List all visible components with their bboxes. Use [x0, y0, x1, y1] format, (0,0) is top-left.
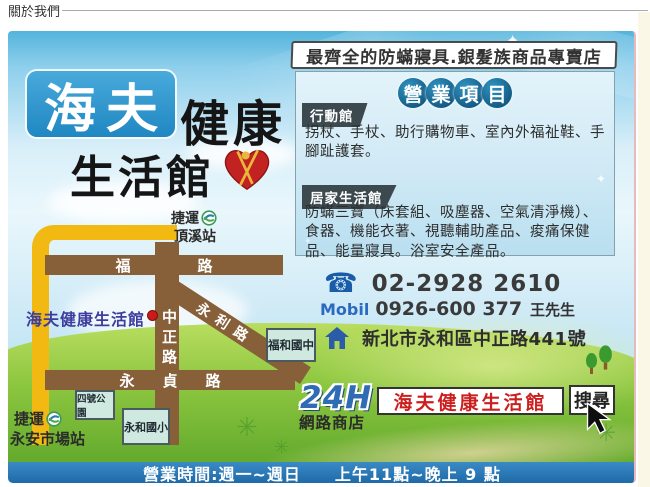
phone-number: 02-2928 2610 [372, 271, 562, 297]
logo-text-life-store: 生活館 [70, 141, 214, 206]
mobile-number: 0926-600 377 [375, 298, 522, 320]
mrt-station-bottom-name: 永安市場站 [10, 428, 85, 449]
sparkle-icon [596, 172, 606, 186]
house-icon [324, 326, 350, 350]
gift-heart-icon [220, 143, 274, 195]
map-place-park: 四號公園 [75, 390, 115, 420]
mobile-label: Mobil [320, 300, 369, 319]
section-text-home-living: 防蟎三寶（床套組、吸塵器、空氣清淨機）、食器、機能衣著、視聽輔助產品、痠痛保健品… [305, 204, 608, 262]
mrt-station-bottom: 捷運 [14, 408, 62, 429]
store-marker-label: 海夫健康生活館 [26, 306, 145, 330]
mrt-label: 捷運 [14, 408, 44, 429]
business-hours-time: 上午11點~晚上 9 點 [335, 461, 501, 484]
store-location-dot [147, 310, 158, 321]
road-zhongzheng-label: 中正路 [159, 309, 180, 369]
address-row: 新北市永和區中正路441號 [324, 325, 586, 351]
section-text-mobility: 拐杖、手杖、助行購物車、室內外福祉鞋、手腳趾護套。 [305, 124, 608, 163]
tree [599, 345, 612, 369]
cursor-arrow-icon [582, 402, 614, 436]
grass-burst-icon [274, 437, 289, 458]
about-section-label: 關於我們 [8, 1, 60, 20]
contact-person: 王先生 [530, 299, 575, 320]
title-char: 業 [426, 78, 456, 108]
phone-row: ☎ 02-2928 2610 [324, 268, 561, 299]
title-char: 目 [482, 78, 512, 108]
mrt-logo-icon [46, 411, 62, 427]
search-input[interactable]: 海夫健康生活館 [377, 387, 564, 415]
road-yongzhen: 永貞路 [45, 370, 295, 390]
page-right-margin [638, 12, 650, 487]
mobile-row: Mobil 0926-600 377 王先生 [320, 298, 575, 320]
grass-burst-icon [236, 413, 258, 443]
section-divider [62, 10, 648, 11]
title-char: 營 [398, 78, 428, 108]
mrt-label: 捷運 [171, 208, 199, 228]
online-shop-label: 網路商店 [299, 411, 365, 433]
tree [586, 353, 597, 374]
map-place-school2: 福和國中 [266, 328, 316, 362]
title-char: 項 [454, 78, 484, 108]
logo-text-haifu: 海夫 [34, 67, 168, 142]
store-promo-image: 海夫 健康 生活館 最齊全的防蟎寢具.銀髮族商品專賣店 營 業 項 目 行動館 … [8, 31, 636, 483]
logo-haifu-badge: 海夫 [27, 71, 175, 137]
business-hours-days: 營業時間:週一~週日 [143, 461, 301, 484]
sparkle-icon [304, 237, 312, 247]
business-hours-bar: 營業時間:週一~週日 上午11點~晚上 9 點 [8, 462, 636, 483]
phone-icon: ☎ [324, 268, 358, 299]
map-place-school1: 永和國小 [122, 408, 170, 445]
mrt-station-top: 捷運 [171, 208, 217, 228]
mrt-logo-icon [201, 210, 217, 226]
mrt-station-top-name: 頂溪站 [174, 226, 216, 246]
business-items-panel: 營 業 項 目 行動館 拐杖、手杖、助行購物車、室內外福祉鞋、手腳趾護套。 居家… [295, 71, 615, 256]
address-text: 新北市永和區中正路441號 [362, 325, 586, 351]
tagline-banner: 最齊全的防蟎寢具.銀髮族商品專賣店 [291, 41, 618, 69]
